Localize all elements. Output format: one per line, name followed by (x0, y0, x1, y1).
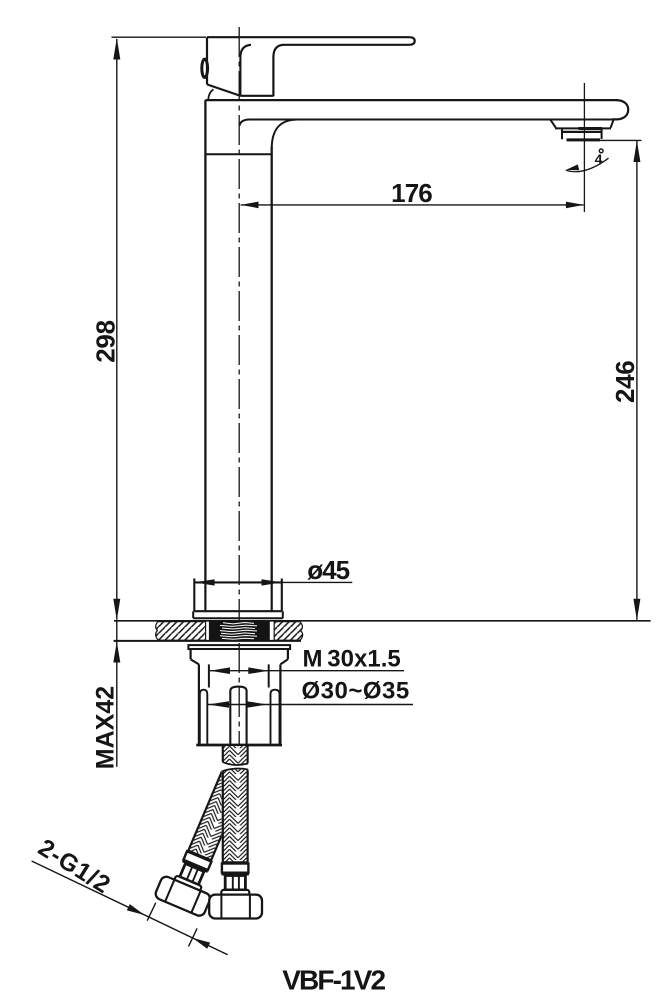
svg-text:Ø30~Ø35: Ø30~Ø35 (302, 677, 410, 704)
svg-text:298: 298 (90, 320, 120, 362)
svg-text:VBF-1V2: VBF-1V2 (282, 964, 385, 995)
svg-text:M 30x1.5: M 30x1.5 (303, 646, 401, 673)
svg-text:MAX42: MAX42 (91, 686, 119, 769)
svg-text:4: 4 (595, 151, 603, 167)
svg-text:176: 176 (391, 178, 432, 208)
svg-text:2-G1/2: 2-G1/2 (33, 834, 115, 899)
svg-text:246: 246 (610, 361, 640, 403)
svg-text:ø45: ø45 (307, 555, 349, 585)
